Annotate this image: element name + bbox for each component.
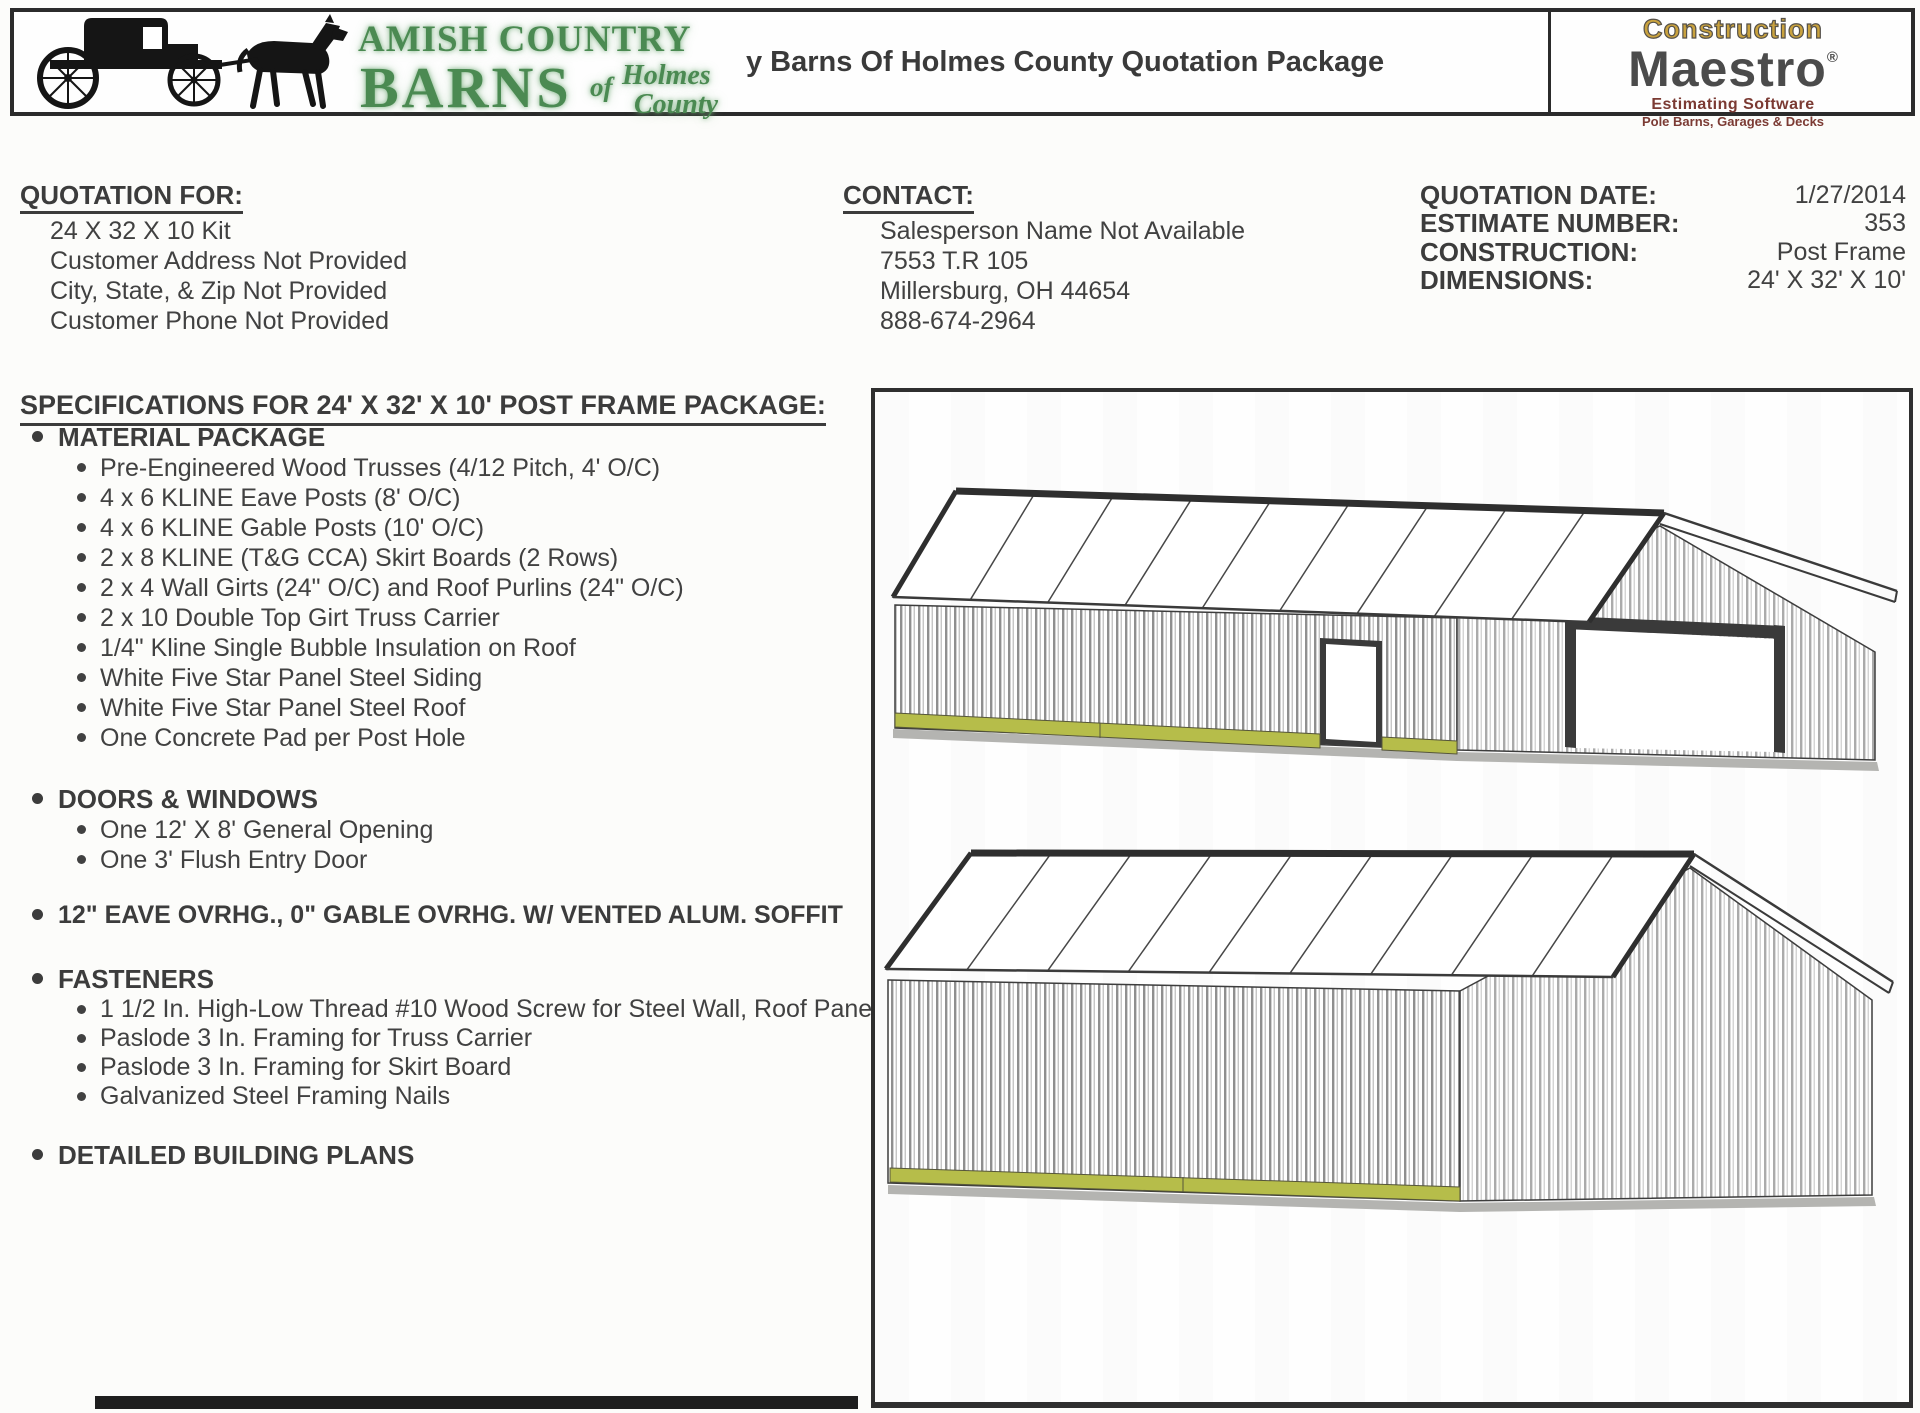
maestro-word: Maestro <box>1628 41 1827 97</box>
detail-row: DIMENSIONS: 24' X 32' X 10' <box>1420 266 1906 294</box>
material-item: Pre-Engineered Wood Trusses (4/12 Pitch,… <box>20 453 684 483</box>
logo-holmes: Holmes <box>622 60 711 92</box>
quotation-for-heading: QUOTATION FOR: <box>20 180 243 214</box>
logo-of: of <box>590 72 613 103</box>
contact-line: Millersburg, OH 44654 <box>880 276 1245 306</box>
quotation-for-line: Customer Phone Not Provided <box>50 306 407 336</box>
maestro-subtitle2: Pole Barns, Garages & Decks <box>1554 115 1912 128</box>
quotation-for-line: 24 X 32 X 10 Kit <box>50 216 407 246</box>
fastener-item: Paslode 3 In. Framing for Truss Carrier <box>20 1024 872 1053</box>
doors-item: One 12' X 8' General Opening <box>20 815 433 845</box>
material-item: 4 x 6 KLINE Gable Posts (10' O/C) <box>20 513 684 543</box>
quotation-page: AMISH COUNTRY BARNS of Holmes County y B… <box>0 0 1920 1413</box>
amish-country-barns-logo: AMISH COUNTRY BARNS of Holmes County <box>358 16 778 112</box>
overhang-line: 12" EAVE OVRHG., 0" GABLE OVRHG. W/ VENT… <box>20 900 843 930</box>
drawing-box <box>871 388 1913 1408</box>
detail-value: 353 <box>1864 209 1906 237</box>
material-item: 4 x 6 KLINE Eave Posts (8' O/C) <box>20 483 684 513</box>
quotation-details-section: QUOTATION DATE: 1/27/2014 ESTIMATE NUMBE… <box>1420 181 1906 295</box>
horse-and-buggy-icon <box>22 14 358 110</box>
detail-label: QUOTATION DATE: <box>1420 181 1657 209</box>
detail-label: CONSTRUCTION: <box>1420 238 1638 266</box>
quotation-for-section: QUOTATION FOR: 24 X 32 X 10 Kit Customer… <box>20 180 407 336</box>
specifications-heading: SPECIFICATIONS FOR 24' X 32' X 10' POST … <box>20 390 826 426</box>
material-package-heading: MATERIAL PACKAGE <box>20 422 325 452</box>
contact-heading: CONTACT: <box>843 180 974 214</box>
material-item: 1/4" Kline Single Bubble Insulation on R… <box>20 633 684 663</box>
detail-value: Post Frame <box>1777 238 1906 266</box>
detail-value: 1/27/2014 <box>1795 181 1906 209</box>
material-item: 2 x 4 Wall Girts (24" O/C) and Roof Purl… <box>20 573 684 603</box>
detail-value: 24' X 32' X 10' <box>1747 266 1906 294</box>
detail-row: ESTIMATE NUMBER: 353 <box>1420 209 1906 237</box>
registered-mark-icon: ® <box>1827 49 1838 66</box>
page-title: y Barns Of Holmes County Quotation Packa… <box>746 46 1384 79</box>
construction-maestro-logo: Construction Maestro® Estimating Softwar… <box>1554 16 1912 128</box>
logo-county: County <box>634 89 718 121</box>
doors-item: One 3' Flush Entry Door <box>20 845 433 875</box>
material-item: White Five Star Panel Steel Roof <box>20 693 684 723</box>
contact-line: 888-674-2964 <box>880 306 1245 336</box>
detail-row: QUOTATION DATE: 1/27/2014 <box>1420 181 1906 209</box>
header-divider <box>1548 8 1551 116</box>
detail-row: CONSTRUCTION: Post Frame <box>1420 238 1906 266</box>
maestro-subtitle1: Estimating Software <box>1554 97 1912 113</box>
material-item: 2 x 10 Double Top Girt Truss Carrier <box>20 603 684 633</box>
fasteners-heading: FASTENERS <box>20 964 214 994</box>
logo-line2: BARNS <box>360 54 572 121</box>
quotation-for-line: Customer Address Not Provided <box>50 246 407 276</box>
fasteners-list: 1 1/2 In. High-Low Thread #10 Wood Screw… <box>20 995 872 1111</box>
material-item: White Five Star Panel Steel Siding <box>20 663 684 693</box>
scan-edge-bar <box>95 1396 858 1409</box>
fastener-item: 1 1/2 In. High-Low Thread #10 Wood Screw… <box>20 995 872 1024</box>
building-plans-line: DETAILED BUILDING PLANS <box>20 1140 414 1170</box>
contact-section: CONTACT: Salesperson Name Not Available … <box>843 180 1245 336</box>
doors-windows-heading: DOORS & WINDOWS <box>20 784 318 814</box>
fastener-item: Paslode 3 In. Framing for Skirt Board <box>20 1053 872 1082</box>
material-item: One Concrete Pad per Post Hole <box>20 723 684 753</box>
detail-label: ESTIMATE NUMBER: <box>1420 209 1680 237</box>
material-package-list: Pre-Engineered Wood Trusses (4/12 Pitch,… <box>20 453 684 753</box>
contact-line: Salesperson Name Not Available <box>880 216 1245 246</box>
fastener-item: Galvanized Steel Framing Nails <box>20 1082 872 1111</box>
doors-windows-list: One 12' X 8' General Opening One 3' Flus… <box>20 815 433 875</box>
header: AMISH COUNTRY BARNS of Holmes County y B… <box>10 8 1915 116</box>
quotation-for-line: City, State, & Zip Not Provided <box>50 276 407 306</box>
material-item: 2 x 8 KLINE (T&G CCA) Skirt Boards (2 Ro… <box>20 543 684 573</box>
detail-label: DIMENSIONS: <box>1420 266 1593 294</box>
maestro-name: Maestro® <box>1554 44 1912 94</box>
maestro-construction-label: Construction <box>1554 16 1912 43</box>
contact-line: 7553 T.R 105 <box>880 246 1245 276</box>
